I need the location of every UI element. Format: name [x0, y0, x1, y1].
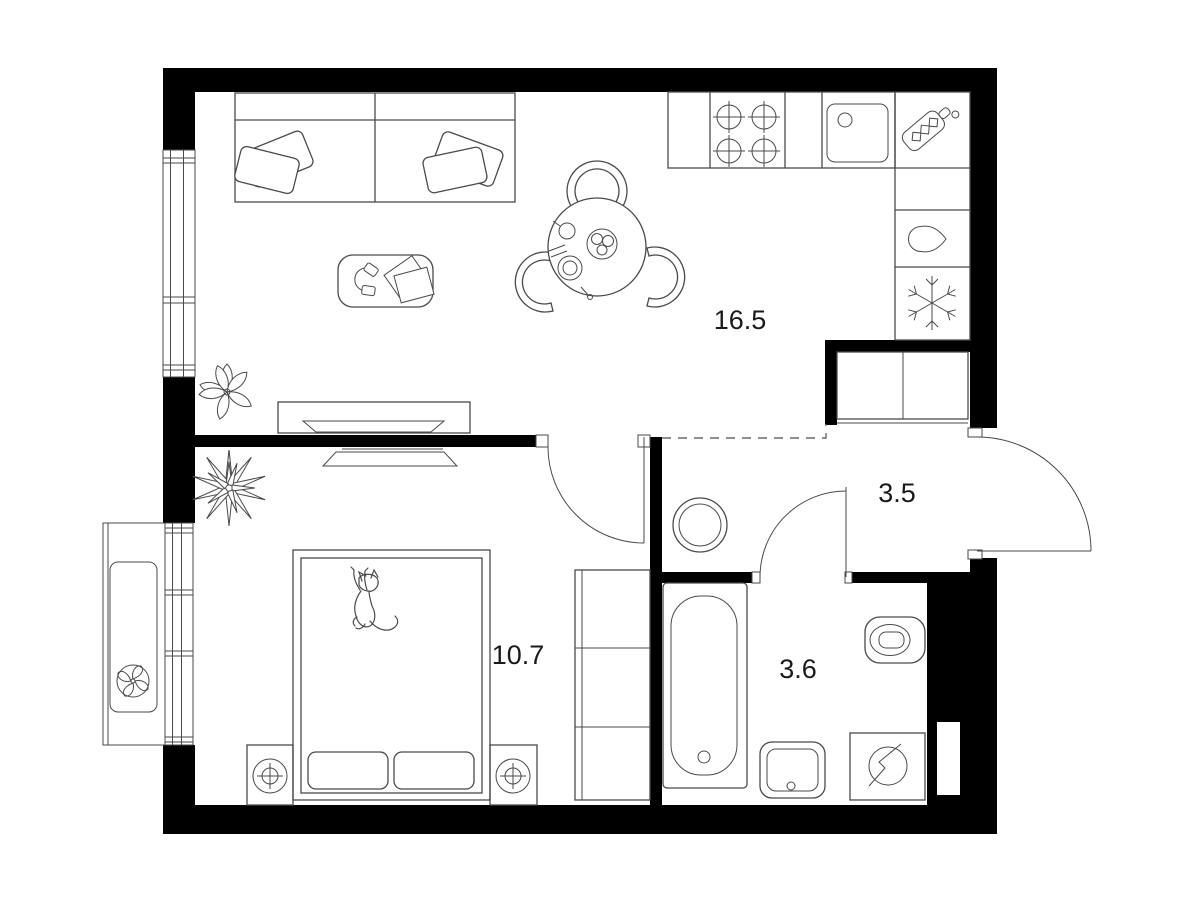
- kitchen-counter: [668, 92, 895, 168]
- pillow-right: [394, 752, 474, 789]
- double-bed: [293, 550, 490, 800]
- washbasin: [760, 742, 825, 798]
- tv-bedroom: [323, 452, 457, 466]
- bathroom-door: [752, 487, 852, 583]
- coffee-table: [338, 255, 434, 307]
- hallway-area-label: 3.5: [878, 478, 916, 508]
- round-pouf: [673, 498, 727, 552]
- hob-burners-icon: [713, 101, 780, 167]
- bedroom-area-label: 10.7: [492, 640, 545, 670]
- chair-right: [647, 247, 685, 307]
- bathroom-area-label: 3.6: [779, 654, 817, 684]
- living-kitchen-area-label: 16.5: [714, 305, 767, 335]
- wall-bottom: [163, 805, 997, 834]
- flower-plant-icon: [199, 364, 254, 421]
- balcony-window: [165, 523, 193, 745]
- floor-plan-canvas: 16.5 10.7 3.5 3.6: [0, 0, 1200, 900]
- tv-console: [278, 402, 470, 466]
- balcony: [103, 523, 165, 745]
- nightstand-left: [247, 745, 293, 805]
- wall-bathroom-north-right: [852, 572, 927, 583]
- air-conditioner: [110, 562, 157, 712]
- round-dining-table: [548, 198, 646, 296]
- tv-living-room: [303, 421, 444, 432]
- dining-set: [515, 161, 684, 312]
- hallway-wardrobe: [837, 352, 968, 423]
- wall-left-upper: [163, 68, 195, 150]
- wall-wardrobe-stub: [825, 340, 837, 425]
- wall-top: [163, 68, 997, 92]
- duct-niche: [937, 722, 960, 795]
- bedroom-closet: [575, 570, 650, 800]
- snowflake-icon: [906, 276, 959, 330]
- wall-bathroom-north-left: [662, 572, 752, 583]
- washing-machine: [850, 733, 925, 800]
- cutting-board-icon: [899, 98, 960, 154]
- wall-wardrobe-top: [825, 340, 997, 352]
- pillow-left: [308, 752, 388, 789]
- spiky-plant-icon: [192, 450, 266, 526]
- wall-left-middle: [163, 377, 195, 523]
- kitchen-cabinet-column: [895, 92, 970, 340]
- sofa: [234, 93, 515, 202]
- kitchen-sink-icon: [827, 104, 888, 162]
- toilet: [865, 617, 925, 663]
- wall-bedroom-north: [193, 435, 536, 447]
- cat-figure: [351, 567, 398, 630]
- wall-hallway-west: [650, 437, 662, 805]
- zone-boundary-dashed-line: [662, 424, 826, 438]
- bathtub: [663, 583, 747, 788]
- bedroom-door: [536, 435, 650, 543]
- nightstand-right: [490, 745, 537, 805]
- chair-left: [515, 252, 553, 312]
- living-room-window: [163, 150, 195, 377]
- wall-right-upper: [970, 68, 997, 428]
- water-drop-icon: [909, 226, 947, 252]
- entrance-door: [968, 428, 1091, 559]
